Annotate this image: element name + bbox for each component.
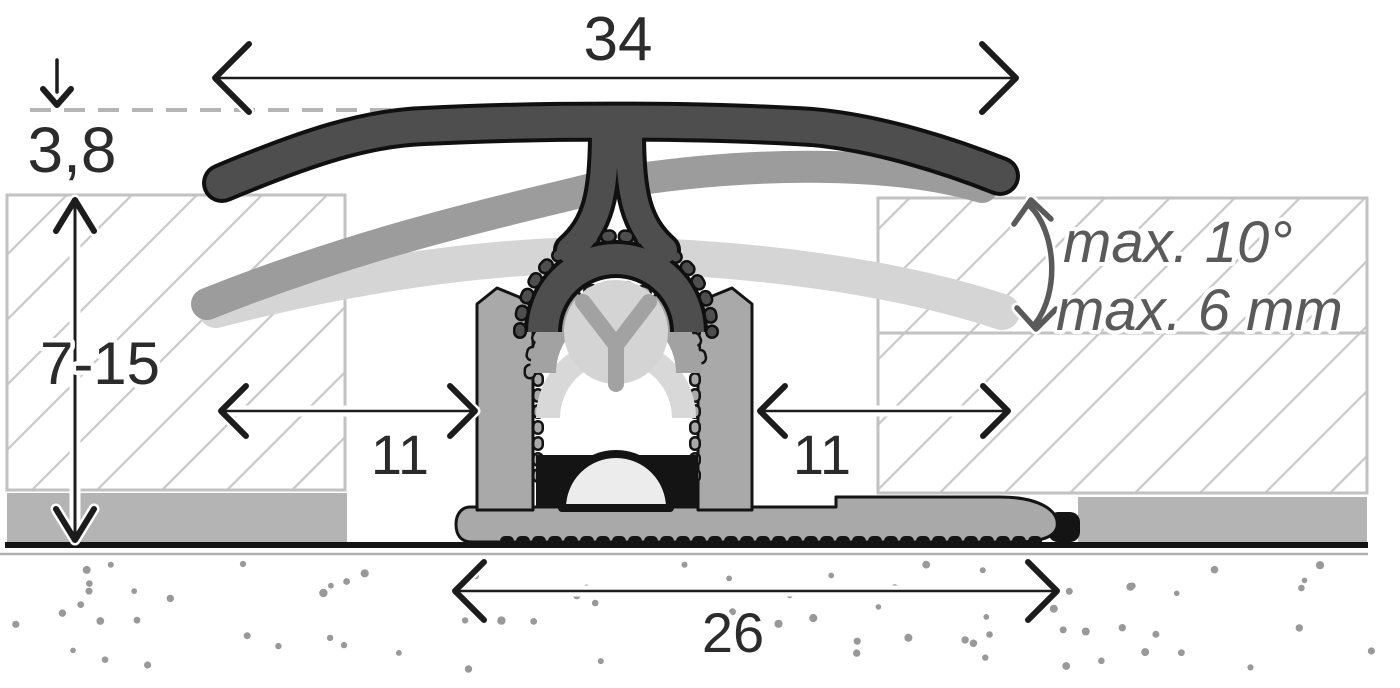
label-cover-thickness: 3,8 [28,114,117,186]
stipple-dot [1316,561,1324,569]
stipple-dot [86,580,93,587]
stipple-dot [854,638,861,645]
stipple-dot [809,614,817,622]
stipple-dot [328,583,334,589]
label-max-offset: max. 6 mm [1056,278,1343,343]
stipple-dot [327,635,333,641]
underlay-right [1078,497,1367,542]
stipple-dot [102,656,109,663]
stipple-dot [12,621,19,628]
stipple-dot [986,631,993,638]
stipple-dot [77,601,84,608]
stipple-dot [1098,658,1105,665]
profile-cross-section-diagram: 34 3,8 7-15 11 11 26 max. 10° max. 6 mm [0,0,1400,688]
stipple-dot [1296,624,1303,631]
stipple-dot [275,643,281,649]
stipple-dot [980,567,986,573]
stipple-dot [240,561,246,567]
stipple-dot [1050,605,1058,613]
stipple-dot [1141,648,1149,656]
label-gap-right: 11 [793,423,851,486]
stipple-dot [983,614,989,620]
stipple-dot [1066,588,1073,595]
stipple-dot [592,600,599,607]
stipple-dot [1368,647,1375,654]
stipple-dot [244,632,251,639]
label-base-width: 26 [702,601,764,664]
stipple-dot [1302,578,1308,584]
stipple-dot [876,604,882,610]
stipple-dot [1247,664,1253,670]
stipple-dot [341,642,347,648]
stipple-dot [86,588,93,595]
stipple-dot [131,588,137,594]
label-height-range: 7-15 [40,330,160,397]
subfloor-stipple [12,561,1375,673]
stipple-dot [1060,626,1067,633]
stipple-dot [726,576,732,582]
stipple-dot [1298,585,1305,592]
stipple-dot [1082,628,1090,636]
stipple-dot [1152,631,1159,638]
stipple-dot [961,636,968,643]
stipple-dot [970,640,978,648]
stipple-dot [361,569,369,577]
stipple-dot [1178,649,1185,656]
stipple-dot [134,617,141,624]
stipple-dot [853,649,860,656]
stipple-dot [774,620,782,628]
stipple-dot [462,617,468,623]
stipple-dot [70,648,76,654]
stipple-dot [497,616,505,624]
stipple-dot [1119,624,1126,631]
stipple-dot [1211,566,1219,574]
label-total-width: 34 [584,5,653,74]
stipple-dot [343,578,350,585]
stipple-dot [96,617,104,625]
stipple-dot [108,562,114,568]
stipple-dot [828,573,834,579]
stipple-dot [530,618,537,625]
stipple-dot [83,566,91,574]
stipple-dot [682,562,688,568]
stipple-dot [1174,591,1180,597]
stipple-dot [982,654,988,660]
stipple-dot [167,595,174,602]
label-max-angle: max. 10° [1063,210,1293,275]
dim-cover-thickness [43,60,71,105]
diagram-svg: 34 3,8 7-15 11 11 26 max. 10° max. 6 mm [0,0,1400,688]
stipple-dot [1062,662,1070,670]
stipple-dot [59,609,66,616]
stipple-dot [319,589,327,597]
stipple-dot [922,561,930,569]
stipple-dot [1129,583,1136,590]
stipple-dot [904,634,912,642]
stipple-dot [396,650,402,656]
label-gap-left: 11 [371,423,429,486]
stipple-dot [598,658,604,664]
left-channel-wall [477,288,533,510]
stipple-dot [144,661,151,668]
stipple-dot [465,665,472,672]
